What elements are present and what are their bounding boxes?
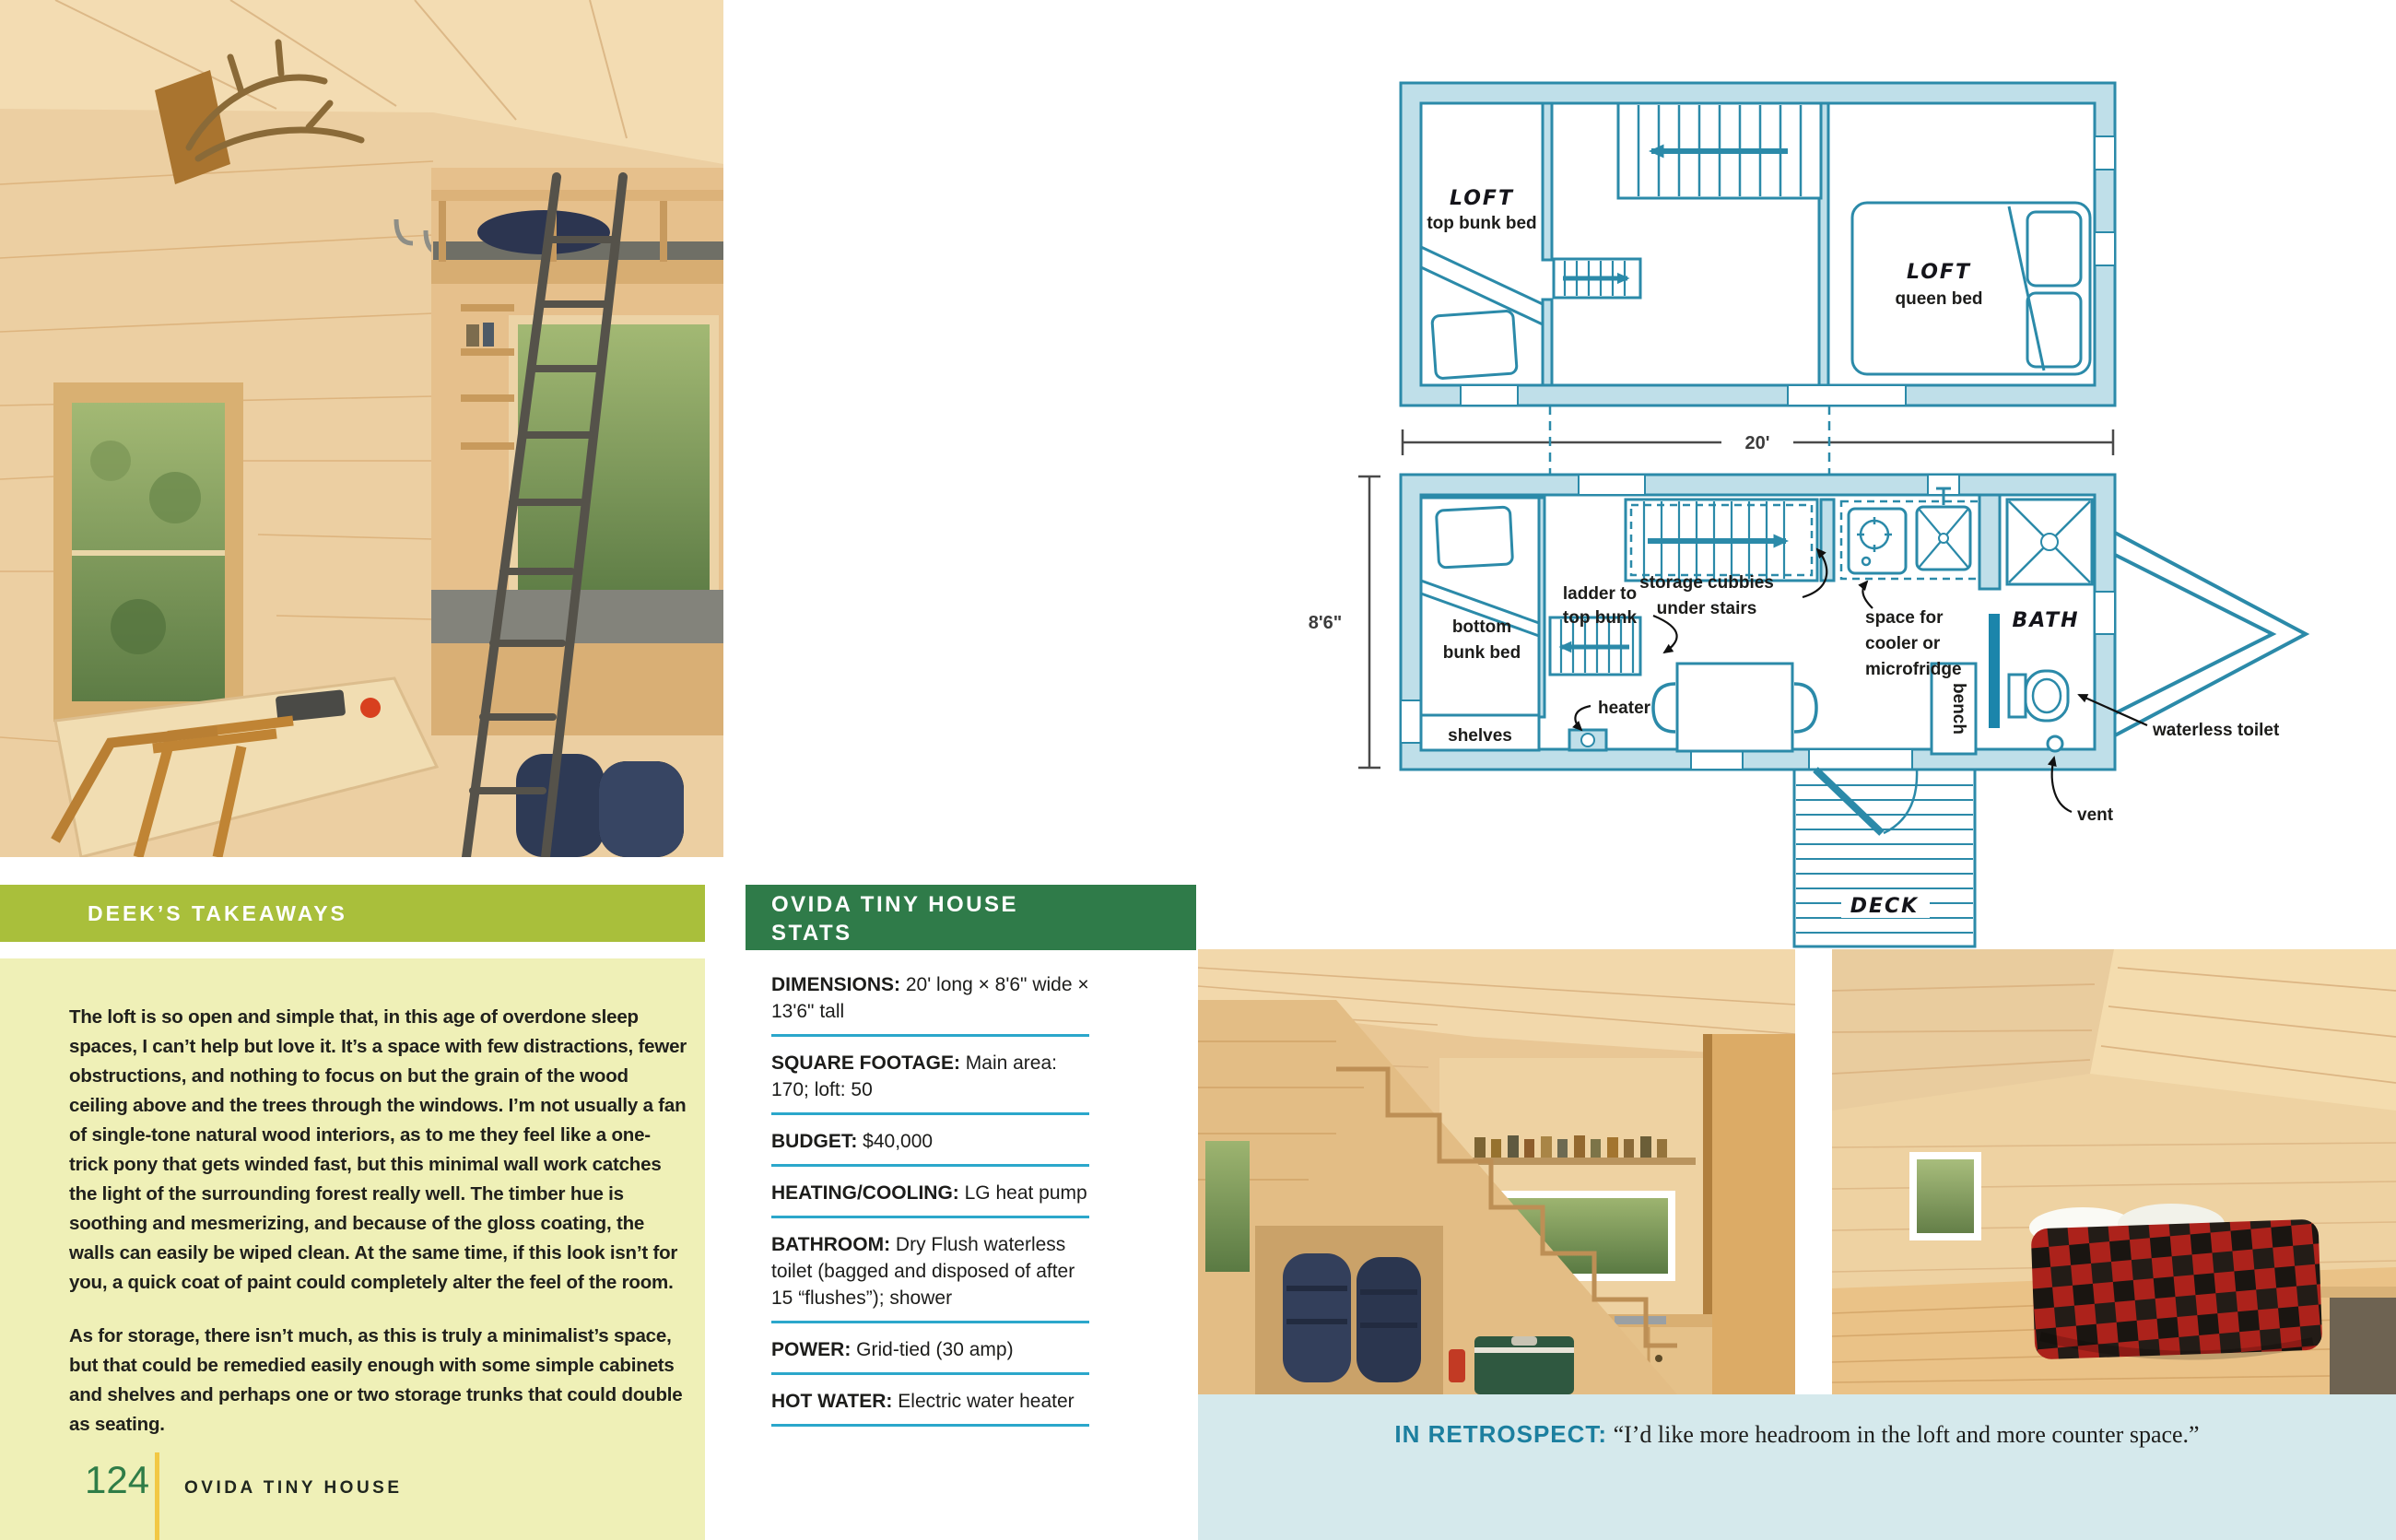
label-bunk-1: bottom: [1452, 617, 1511, 637]
photo-kitchen: [1198, 949, 1795, 1394]
retrospect-quote: “I’d like more headroom in the loft and …: [1607, 1421, 2200, 1448]
label-loft-bunk-sub: top bunk bed: [1427, 214, 1536, 233]
stat-item: POWER: Grid-tied (30 amp): [771, 1334, 1089, 1372]
photo-kitchen-art: [1198, 949, 1795, 1394]
loft-window: [1909, 1152, 1981, 1240]
stat-divider: [771, 1216, 1089, 1218]
photo-loft-bedroom-art: [1832, 949, 2396, 1394]
photo-main-interior-art: [0, 0, 723, 857]
stat-item: BATHROOM: Dry Flush waterless toilet (ba…: [771, 1229, 1089, 1321]
label-storage-1: storage cubbies: [1639, 573, 1774, 593]
retrospect-line: IN RETROSPECT: “I’d like more headroom i…: [1198, 1420, 2396, 1449]
label-vent: vent: [2077, 805, 2114, 825]
loft-plan: LOFT top bunk bed LOFT queen bed: [1401, 83, 2115, 406]
stat-item: DIMENSIONS: 20' long × 8'6" wide × 13'6"…: [771, 970, 1089, 1034]
photo-main-interior: [0, 0, 723, 857]
takeaways-paragraph-2: As for storage, there isn’t much, as thi…: [69, 1322, 688, 1440]
stat-label: BATHROOM:: [771, 1234, 896, 1255]
stat-divider: [771, 1372, 1089, 1375]
stat-label: HOT WATER:: [771, 1391, 898, 1412]
takeaways-panel: The loft is so open and simple that, in …: [0, 958, 705, 1540]
label-loft-queen-title: LOFT: [1907, 261, 1971, 284]
takeaways-header-bar: DEEK’S TAKEAWAYS: [0, 885, 705, 942]
label-bench: bench: [1949, 683, 1968, 735]
takeaways-paragraph-1: The loft is so open and simple that, in …: [69, 1003, 688, 1298]
stat-item: BUDGET: $40,000: [771, 1126, 1089, 1164]
stat-divider: [771, 1321, 1089, 1323]
stat-divider: [771, 1424, 1089, 1427]
buffalo-plaid-blanket: [2031, 1219, 2323, 1360]
label-cooler-1: space for: [1865, 608, 1944, 628]
dimension-length: 20': [1403, 429, 2113, 455]
cooler: [1474, 1336, 1574, 1394]
stat-divider: [771, 1164, 1089, 1167]
label-ladder-2: top bunk: [1563, 608, 1638, 628]
label-storage-2: under stairs: [1657, 599, 1757, 618]
label-cooler-2: cooler or: [1865, 634, 1941, 653]
stat-value: $40,000: [863, 1131, 933, 1152]
stat-item: HEATING/COOLING: LG heat pump: [771, 1178, 1089, 1216]
label-dim-length: 20': [1744, 433, 1769, 453]
label-bath: BATH: [2012, 609, 2079, 632]
stat-label: DIMENSIONS:: [771, 974, 906, 995]
floor-plan: LOFT top bunk bed LOFT queen bed 20' 8'6…: [1272, 28, 2396, 949]
deck: DECK: [1794, 770, 1975, 946]
stat-value: LG heat pump: [965, 1182, 1087, 1204]
stat-value: Electric water heater: [898, 1391, 1074, 1412]
stat-item: HOT WATER: Electric water heater: [771, 1386, 1089, 1424]
label-deck: DECK: [1850, 895, 1919, 918]
footer-title: OVIDA TINY HOUSE: [184, 1478, 403, 1499]
label-ladder-1: ladder to: [1563, 584, 1637, 604]
stats-heading-line2: STATS: [771, 919, 1196, 947]
bath-door: [1989, 614, 2000, 728]
footer-divider: [155, 1452, 159, 1540]
stat-value: Grid-tied (30 amp): [856, 1339, 1013, 1360]
takeaways-body: The loft is so open and simple that, in …: [69, 1003, 688, 1464]
label-cooler-3: microfridge: [1865, 660, 1962, 679]
stats-heading-line1: OVIDA TINY HOUSE: [771, 890, 1196, 919]
stat-divider: [771, 1112, 1089, 1115]
stat-label: HEATING/COOLING:: [771, 1182, 965, 1204]
takeaways-heading: DEEK’S TAKEAWAYS: [0, 901, 347, 926]
page-number: 124: [85, 1458, 149, 1502]
label-shelves: shelves: [1448, 726, 1512, 746]
label-loft-queen-sub: queen bed: [1895, 289, 1982, 309]
stat-label: POWER:: [771, 1339, 856, 1360]
dimension-width: 8'6": [1309, 476, 1380, 768]
photo-loft-bedroom: [1832, 949, 2396, 1394]
label-loft-bunk-title: LOFT: [1450, 187, 1514, 210]
label-dim-width: 8'6": [1309, 613, 1342, 633]
stat-label: SQUARE FOOTAGE:: [771, 1052, 966, 1074]
stats-list: DIMENSIONS: 20' long × 8'6" wide × 13'6"…: [771, 970, 1089, 1438]
label-heater: heater: [1598, 699, 1651, 718]
stat-item: SQUARE FOOTAGE: Main area: 170; loft: 50: [771, 1048, 1089, 1112]
stats-header: OVIDA TINY HOUSE STATS: [746, 885, 1196, 950]
label-bunk-2: bunk bed: [1443, 643, 1521, 663]
retrospect-band: IN RETROSPECT: “I’d like more headroom i…: [1198, 1394, 2396, 1540]
window-left: [53, 382, 243, 722]
book-spread: DEEK’S TAKEAWAYS The loft is so open and…: [0, 0, 2396, 1540]
label-waterless-toilet: waterless toilet: [2152, 721, 2280, 740]
stat-divider: [771, 1034, 1089, 1037]
stat-label: BUDGET:: [771, 1131, 863, 1152]
retrospect-label: IN RETROSPECT:: [1394, 1420, 1607, 1448]
